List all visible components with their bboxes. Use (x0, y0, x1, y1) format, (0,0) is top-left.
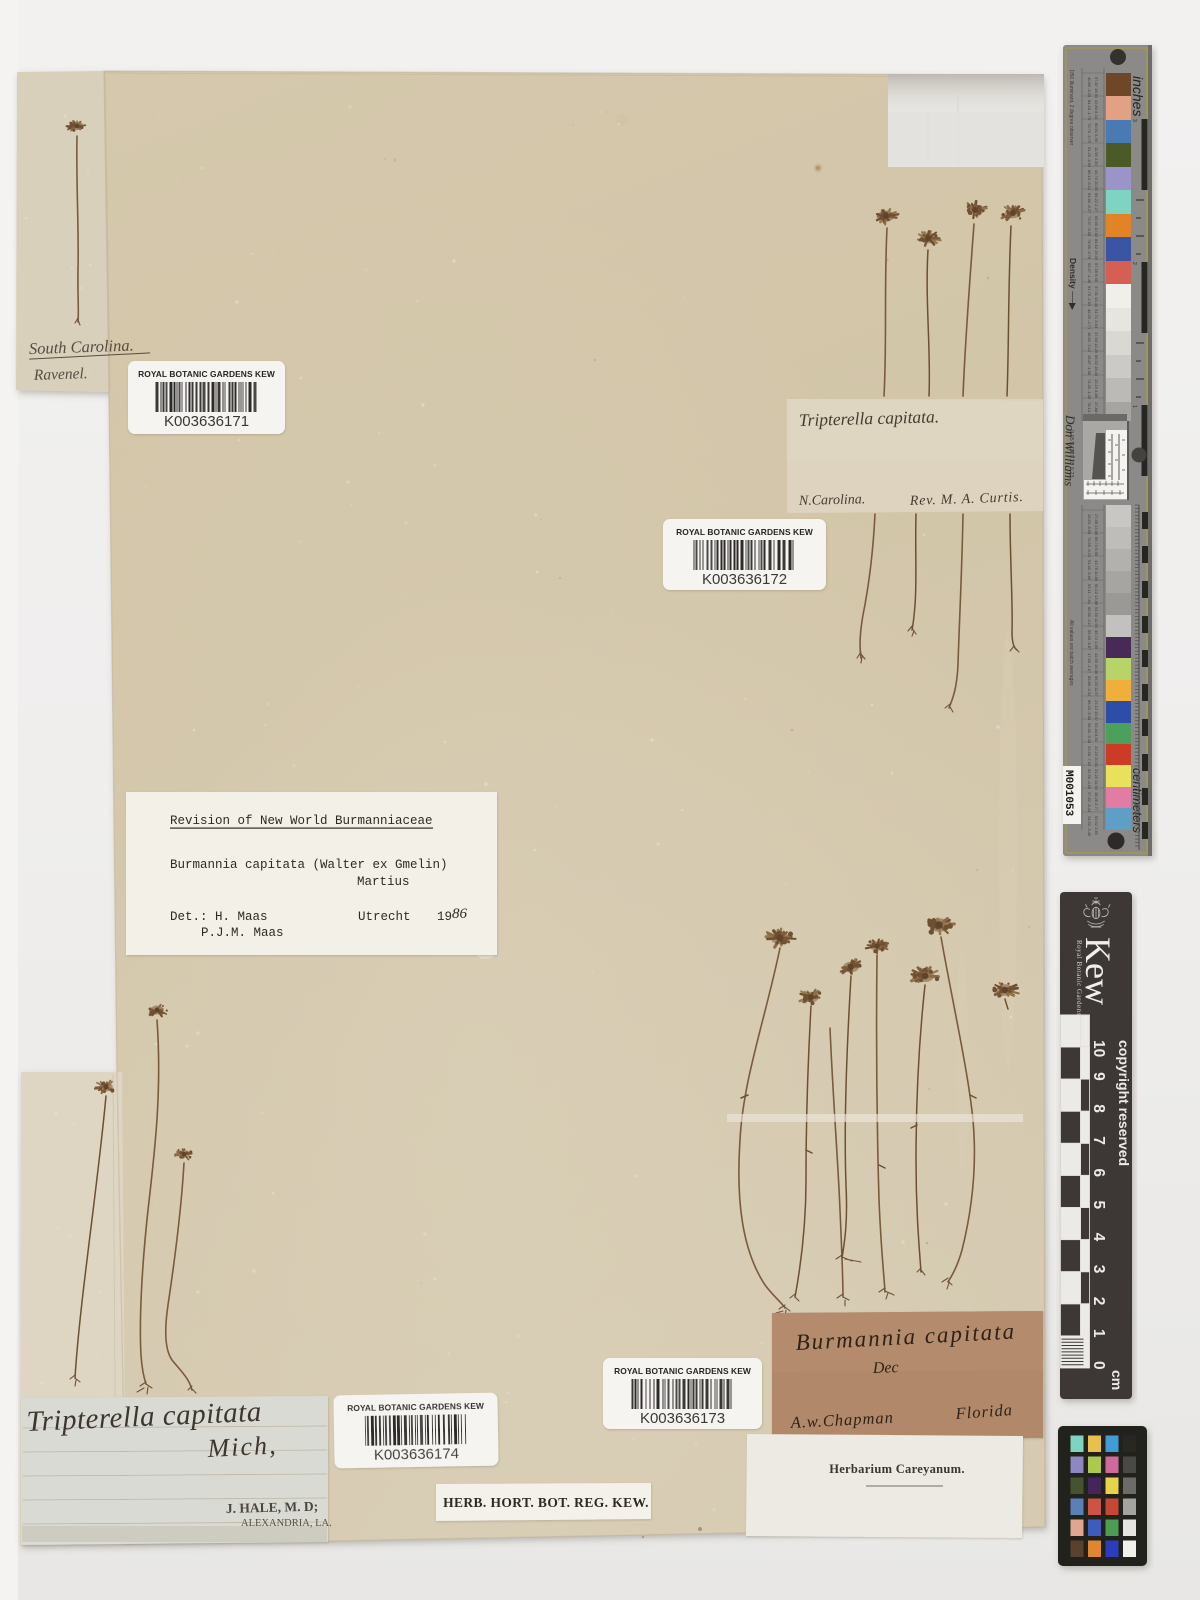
svg-text:93.44 8.51: 93.44 8.51 (1094, 723, 1099, 743)
svg-text:84.18 -1.70: 84.18 -1.70 (1087, 100, 1092, 121)
svg-text:Kew: Kew (1078, 937, 1118, 1005)
svg-text:18.62 -3.12: 18.62 -3.12 (1087, 332, 1092, 353)
svg-text:43.80 8.34: 43.80 8.34 (1094, 100, 1099, 120)
svg-text:N.Carolina.: N.Carolina. (798, 492, 866, 509)
svg-text:85.86 -6.32: 85.86 -6.32 (1087, 676, 1092, 697)
svg-text:56.33 11.57: 56.33 11.57 (1094, 676, 1099, 698)
svg-text:65.90 10.63: 65.90 10.63 (1094, 216, 1099, 238)
svg-text:2: 2 (1090, 1297, 1107, 1306)
svg-text:44.70 20.59: 44.70 20.59 (1094, 170, 1099, 192)
svg-text:1: 1 (1131, 405, 1137, 408)
svg-text:All values are batch averages: All values are batch averages (1068, 620, 1074, 686)
svg-text:Don Williams: Don Williams (1062, 414, 1078, 486)
svg-text:86: 86 (452, 906, 468, 922)
svg-text:HERB. HORT. BOT. REG. KEW.: HERB. HORT. BOT. REG. KEW. (443, 1495, 649, 1510)
svg-text:7: 7 (1090, 1136, 1107, 1145)
svg-text:Florida: Florida (954, 1400, 1014, 1423)
svg-text:76.59 -9.23: 76.59 -9.23 (1087, 537, 1092, 558)
svg-text:91.90 11.69: 91.90 11.69 (1094, 607, 1099, 629)
svg-text:91.29 -9.59: 91.29 -9.59 (1087, 147, 1092, 168)
svg-text:10.19 4.86: 10.19 4.86 (1094, 379, 1099, 399)
svg-text:Tripterella capitata.: Tripterella capitata. (799, 406, 940, 430)
svg-text:Utrecht: Utrecht (358, 910, 411, 924)
svg-text:85.15 -5.13: 85.15 -5.13 (1087, 170, 1092, 191)
svg-text:5: 5 (1090, 1201, 1107, 1210)
svg-text:43.76 10.80: 43.76 10.80 (1094, 560, 1099, 582)
svg-text:15.87 -1.58: 15.87 -1.58 (1087, 355, 1092, 376)
svg-text:ROYAL BOTANIC GARDENS KEW: ROYAL BOTANIC GARDENS KEW (138, 369, 275, 379)
svg-text:Det.: H. Maas: Det.: H. Maas (170, 910, 268, 924)
svg-text:42.90 15.48: 42.90 15.48 (1094, 653, 1099, 675)
svg-text:86.43 -5.58: 86.43 -5.58 (1087, 700, 1092, 721)
svg-text:74.40 -1.49: 74.40 -1.49 (1087, 379, 1092, 400)
svg-text:56.22 2.27: 56.22 2.27 (1094, 193, 1099, 213)
svg-text:ROYAL BOTANIC GARDENS KEW: ROYAL BOTANIC GARDENS KEW (614, 1366, 751, 1376)
svg-text:Mich,: Mich, (206, 1430, 278, 1463)
svg-text:85.52 18.45: 85.52 18.45 (1094, 355, 1099, 377)
svg-text:0: 0 (1090, 1361, 1107, 1370)
svg-text:70.79 -9.70: 70.79 -9.70 (1087, 123, 1092, 144)
svg-text:64.60 -8.27: 64.60 -8.27 (1087, 193, 1092, 214)
svg-text:3: 3 (1090, 1265, 1107, 1274)
svg-text:52.96 -4.66: 52.96 -4.66 (1087, 769, 1092, 790)
svg-text:38.25 2.77: 38.25 2.77 (1094, 792, 1099, 812)
svg-text:22.23 20.51: 22.23 20.51 (1094, 746, 1099, 768)
svg-text:inches: inches (1130, 76, 1146, 116)
svg-text:74.59 -6.78: 74.59 -6.78 (1087, 239, 1092, 260)
svg-text:Herbarium Careyanum.: Herbarium Careyanum. (829, 1462, 965, 1476)
svg-text:47.64 14.25: 47.64 14.25 (1094, 332, 1099, 354)
svg-text:87.95 6.99: 87.95 6.99 (1094, 263, 1099, 283)
svg-text:15.53 -6.56: 15.53 -6.56 (1087, 514, 1092, 535)
svg-text:D50 Illuminant, 2 degree obser: D50 Illuminant, 2 degree observer (1068, 70, 1074, 146)
svg-text:Ravenel.: Ravenel. (33, 365, 88, 384)
svg-text:8: 8 (1090, 1104, 1107, 1113)
svg-text:46.25 -2.71: 46.25 -2.71 (1087, 309, 1092, 330)
svg-text:Dec: Dec (872, 1359, 899, 1377)
svg-text:55.96 -6.87: 55.96 -6.87 (1087, 630, 1092, 651)
svg-text:45.72 1.85: 45.72 1.85 (1094, 630, 1099, 650)
svg-text:6: 6 (1090, 1168, 1107, 1177)
svg-text:K003636174: K003636174 (374, 1445, 459, 1463)
svg-text:51.79 -2.93: 51.79 -2.93 (1087, 286, 1092, 307)
svg-text:23.13 19.97: 23.13 19.97 (1094, 700, 1099, 722)
svg-text:P.J.M. Maas: P.J.M. Maas (201, 926, 284, 940)
svg-text:91.40 -5.65: 91.40 -5.65 (1087, 560, 1092, 581)
svg-text:4: 4 (1090, 1233, 1107, 1242)
svg-text:K003636171: K003636171 (164, 413, 249, 430)
svg-text:57.87 16.90: 57.87 16.90 (1094, 77, 1099, 99)
svg-text:37.82 -8.44: 37.82 -8.44 (1087, 792, 1092, 813)
svg-text:2: 2 (1131, 262, 1137, 265)
svg-text:26.49 -9.38: 26.49 -9.38 (1087, 723, 1092, 744)
svg-text:50.12 13.88: 50.12 13.88 (1094, 584, 1099, 606)
svg-text:85.90 -3.17: 85.90 -3.17 (1087, 607, 1092, 628)
svg-text:84.62 19.39: 84.62 19.39 (1094, 239, 1099, 261)
svg-text:3: 3 (1131, 119, 1137, 122)
svg-text:91.71 3.54: 91.71 3.54 (1094, 309, 1099, 329)
svg-text:ROYAL BOTANIC GARDENS KEW: ROYAL BOTANIC GARDENS KEW (676, 527, 813, 537)
svg-text:53.92 3.89: 53.92 3.89 (1094, 816, 1099, 836)
svg-text:K003636173: K003636173 (640, 1410, 725, 1427)
svg-text:19: 19 (437, 910, 452, 924)
svg-text:37.91 19.44: 37.91 19.44 (1094, 286, 1099, 308)
svg-text:31.20 11.93: 31.20 11.93 (1094, 769, 1099, 791)
svg-text:53.11 -7.84: 53.11 -7.84 (1087, 584, 1092, 605)
svg-text:Martius: Martius (357, 875, 410, 889)
svg-text:1: 1 (1090, 1329, 1107, 1338)
svg-text:M001053: M001053 (1062, 770, 1074, 817)
svg-text:60.91 5.39: 60.91 5.39 (1094, 123, 1099, 143)
svg-text:89.74 9.65: 89.74 9.65 (1094, 537, 1099, 557)
svg-text:K003636172: K003636172 (702, 571, 787, 588)
svg-text:10: 10 (1090, 1040, 1107, 1057)
svg-text:11.95 3.30: 11.95 3.30 (1094, 147, 1099, 166)
svg-text:ALEXANDRIA, LA.: ALEXANDRIA, LA. (241, 1518, 332, 1529)
svg-text:centimeters: centimeters (1130, 768, 1144, 833)
svg-text:copyright reserved: copyright reserved (1116, 1040, 1132, 1166)
svg-text:Density ──▶: Density ──▶ (1068, 258, 1078, 311)
svg-text:cm: cm (1109, 1370, 1125, 1390)
svg-text:J. HALE, M. D;: J. HALE, M. D; (226, 1499, 319, 1516)
svg-text:53.97 -1.45: 53.97 -1.45 (1087, 263, 1092, 284)
svg-text:Burmannia capitata (Walter ex: Burmannia capitata (Walter ex Gmelin) (170, 858, 448, 872)
svg-text:9: 9 (1090, 1072, 1107, 1081)
svg-text:17.96 -1.57: 17.96 -1.57 (1087, 653, 1092, 674)
svg-text:Revision of New World Burmanni: Revision of New World Burmanniaceae (170, 814, 433, 828)
svg-text:27.58 13.68: 27.58 13.68 (1094, 514, 1099, 536)
svg-text:34.50 -3.45: 34.50 -3.45 (1087, 816, 1092, 837)
svg-text:33.96 -7.93: 33.96 -7.93 (1087, 746, 1092, 767)
svg-text:73.37 -5.96: 73.37 -5.96 (1087, 216, 1092, 237)
svg-text:40.85 -9.26: 40.85 -9.26 (1087, 77, 1092, 98)
